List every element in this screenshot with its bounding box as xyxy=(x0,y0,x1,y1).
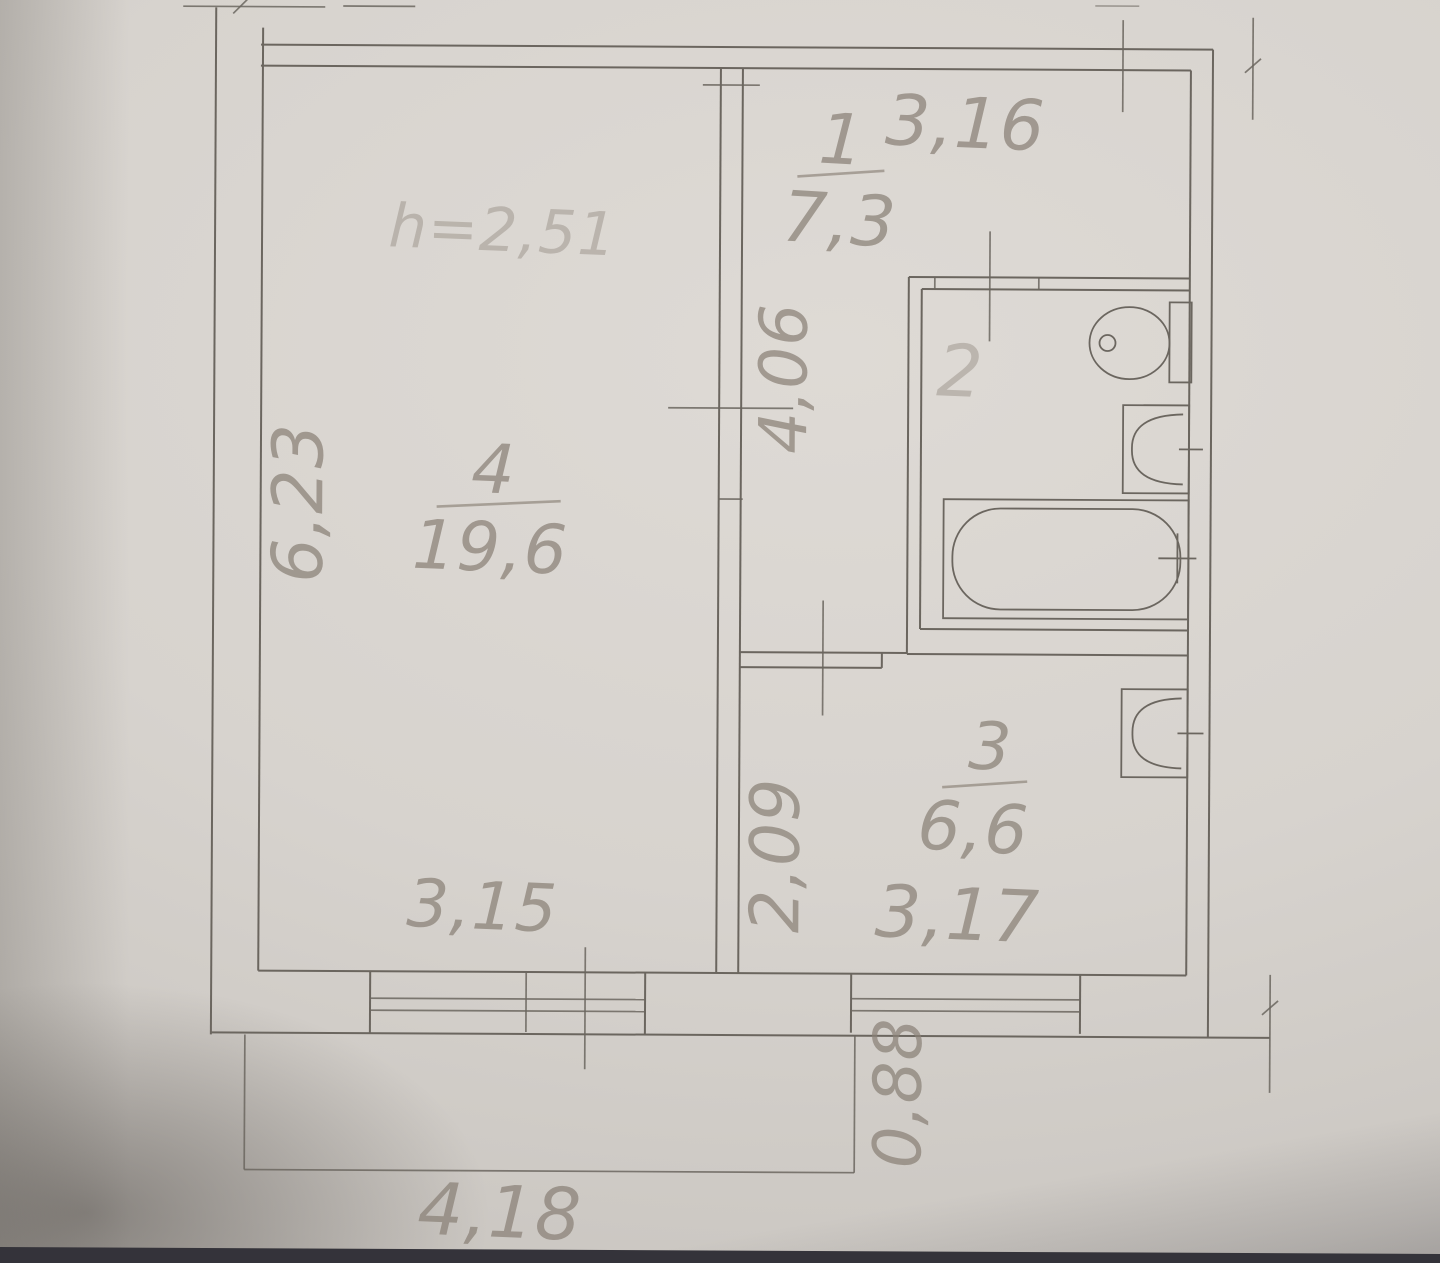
toilet-tank xyxy=(1169,302,1191,382)
window-glazing-line xyxy=(851,999,1080,1000)
balcony-right-depth-dim: 0,88 xyxy=(859,1017,937,1168)
extension-line xyxy=(823,601,824,716)
room-2-number: 2 xyxy=(935,328,985,414)
room-4-area: 19,6 xyxy=(411,506,569,591)
balcony-outline xyxy=(244,970,1278,1175)
wall-bathroom-bottom-inner xyxy=(920,629,1188,630)
wall-left-outer xyxy=(211,7,216,1034)
plan-group: h=2,51 1 7,3 3,16 4,06 2 4 19,6 6,23 3 6… xyxy=(177,0,1284,1261)
room-1-number: 1 xyxy=(817,97,867,181)
balcony-right-edge xyxy=(854,1036,855,1173)
living-left-height-dim: 6,23 xyxy=(257,423,340,583)
extension-line xyxy=(585,947,586,1069)
balcony-bottom-width-dim: 4,18 xyxy=(416,1167,584,1258)
wall-bottom-inner xyxy=(258,971,1186,976)
hall-top-width-dim: 3,16 xyxy=(884,79,1047,167)
toilet-flush xyxy=(1099,335,1115,351)
toilet-bowl xyxy=(1089,307,1169,379)
kitchen-sink-icon xyxy=(1121,689,1203,777)
room-1-area: 7,3 xyxy=(780,175,899,263)
wall-bathroom-top-inner xyxy=(922,289,1190,290)
floor-plan-drawing: h=2,51 1 7,3 3,16 4,06 2 4 19,6 6,23 3 6… xyxy=(0,0,1440,1263)
toilet-icon xyxy=(1089,302,1191,383)
kitchen-left-height-dim: 2,09 xyxy=(736,777,816,933)
extension-line xyxy=(1270,975,1271,1093)
wall-top-inner xyxy=(261,66,1191,71)
washbasin-icon xyxy=(1123,405,1203,493)
wall-corridor-left xyxy=(716,68,721,973)
floor-plan-photo: h=2,51 1 7,3 3,16 4,06 2 4 19,6 6,23 3 6… xyxy=(0,0,1440,1263)
window-glazing-line xyxy=(370,1010,645,1011)
labels: h=2,51 1 7,3 3,16 4,06 2 4 19,6 6,23 3 6… xyxy=(253,76,1047,1260)
wall-right-outer xyxy=(1208,50,1213,1038)
living-bottom-width-dim: 3,15 xyxy=(405,865,559,948)
wall-bathroom-bottom-outer xyxy=(907,654,1188,655)
window-glazing-line xyxy=(370,998,645,999)
bathtub-outline xyxy=(943,499,1189,619)
washbasin-bowl xyxy=(1132,414,1183,484)
sink-bowl xyxy=(1132,698,1181,768)
wall-bathroom-left-inner xyxy=(920,289,922,629)
extension-line xyxy=(990,231,991,341)
windows xyxy=(370,946,1081,1072)
wall-bathroom-left-outer xyxy=(907,277,909,654)
room-3-area: 6,6 xyxy=(915,786,1031,871)
bathtub-basin xyxy=(952,508,1181,610)
kitchen-bottom-width-dim: 3,17 xyxy=(874,869,1042,960)
wall-top-outer xyxy=(261,45,1213,50)
photo-edge xyxy=(0,1247,1440,1263)
extension-line xyxy=(1253,18,1254,120)
hall-left-height-dim: 4,06 xyxy=(745,303,823,454)
room-4-number: 4 xyxy=(470,430,517,511)
window-glazing-line xyxy=(851,1011,1080,1012)
wall-bathroom-top-outer xyxy=(909,277,1190,278)
wall-kitchen-top-lower xyxy=(740,667,882,668)
bathtub-icon xyxy=(943,499,1197,619)
room-3-number: 3 xyxy=(967,707,1014,786)
extension-line xyxy=(183,6,325,7)
dimension-extension-marks-top xyxy=(183,0,1262,120)
balcony-left-edge xyxy=(244,1035,245,1170)
ceiling-height-label: h=2,51 xyxy=(388,191,619,270)
